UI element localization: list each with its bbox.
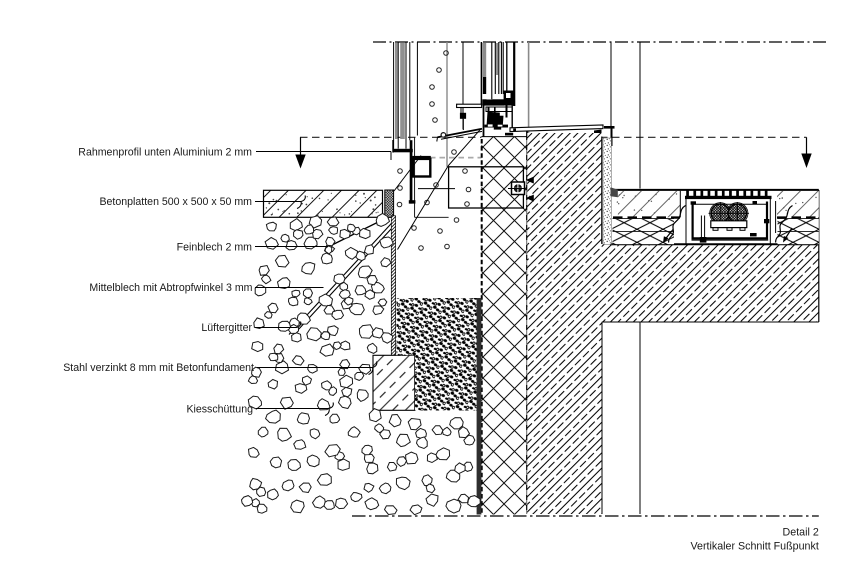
svg-text:Lüftergitter: Lüftergitter [201,322,252,334]
svg-text:Stahl verzinkt 8 mm mit Betonf: Stahl verzinkt 8 mm mit Betonfundament [63,362,254,374]
svg-text:Detail 2: Detail 2 [783,527,819,539]
svg-text:Feinblech 2 mm: Feinblech 2 mm [177,241,253,253]
svg-text:Vertikaler Schnitt Fußpunkt: Vertikaler Schnitt Fußpunkt [690,541,818,553]
svg-text:Mittelblech mit Abtropfwinkel: Mittelblech mit Abtropfwinkel 3 mm [89,282,252,294]
svg-text:Rahmenprofil unten Aluminium 2: Rahmenprofil unten Aluminium 2 mm [78,146,252,158]
svg-text:Kiesschüttung: Kiesschüttung [186,403,253,415]
svg-text:Betonplatten 500 x 500 x 50 mm: Betonplatten 500 x 500 x 50 mm [99,196,252,208]
